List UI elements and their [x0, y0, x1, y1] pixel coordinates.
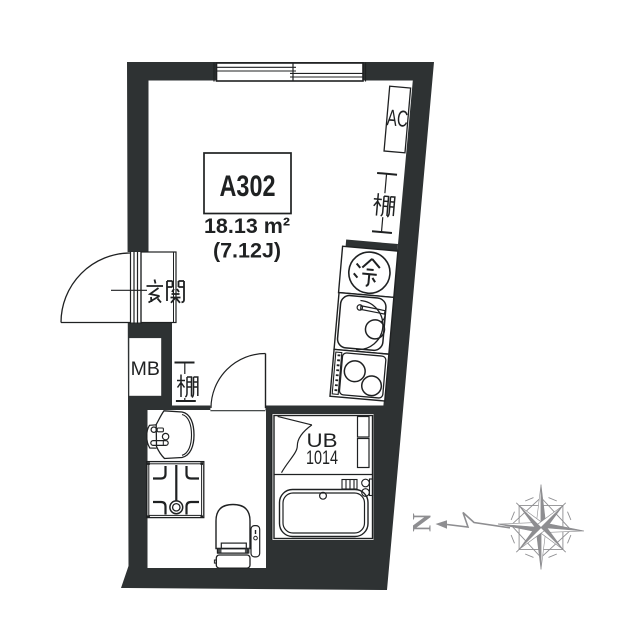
svg-text:(7.12J): (7.12J) — [213, 239, 281, 263]
svg-text:A302: A302 — [220, 170, 276, 203]
svg-text:N: N — [408, 513, 437, 532]
svg-text:AC: AC — [386, 104, 409, 132]
svg-text:18.13 m²: 18.13 m² — [204, 214, 290, 238]
svg-text:1014: 1014 — [306, 448, 338, 469]
svg-text:MB: MB — [131, 358, 160, 380]
